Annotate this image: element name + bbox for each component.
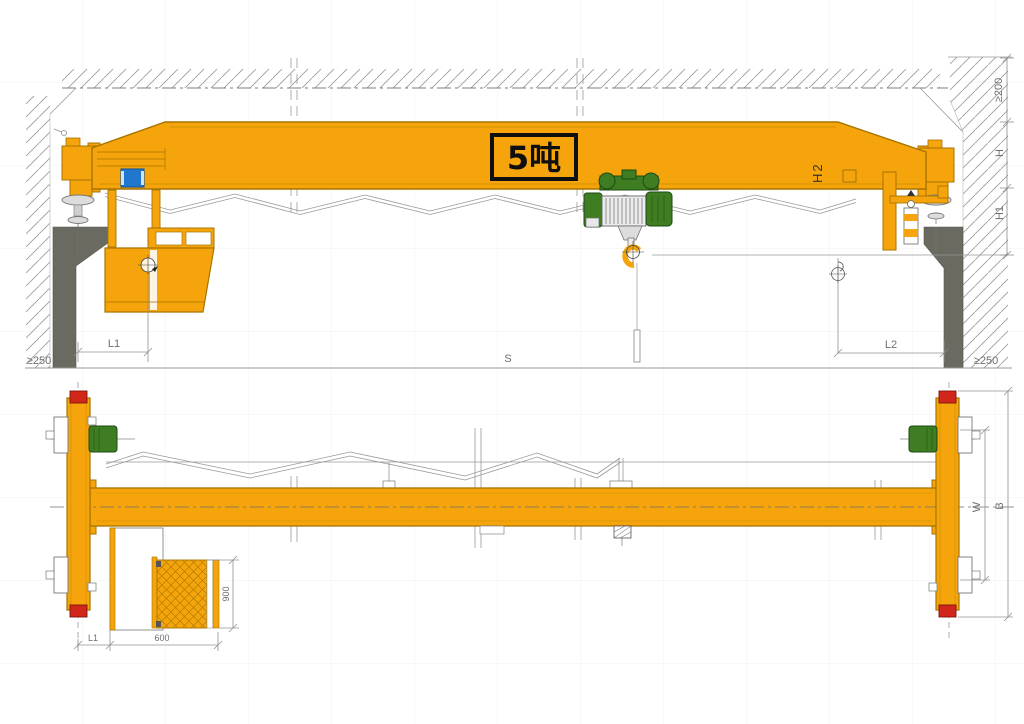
buffer-bottom-left <box>70 605 87 617</box>
buffer-bottom-right <box>939 605 956 617</box>
girder-bottom-tab <box>480 526 504 534</box>
dim-l1-front: L1 <box>108 338 120 350</box>
dim-carriage-length: B <box>994 502 1006 509</box>
dim-h: H <box>994 149 1006 157</box>
dim-l2-front: L2 <box>885 339 897 351</box>
travel-motor-right <box>909 426 937 452</box>
crane-engineering-drawing: 5吨 H2 <box>0 0 1024 724</box>
dim-clearance-right: ≥250 <box>974 355 998 367</box>
dim-cab-offset: L1 <box>88 633 98 643</box>
dim-wheelbase: W <box>971 501 983 512</box>
dim-clearance-left: ≥250 <box>27 355 51 367</box>
dim-cab-width: 600 <box>154 633 169 643</box>
capacity-label: 5吨 <box>507 139 561 177</box>
buffer-top-right <box>939 391 956 403</box>
dim-span: S <box>504 353 511 365</box>
dim-cab-depth: 900 <box>221 586 231 601</box>
girder-front: 5吨 H2 <box>54 122 954 196</box>
dim-h1: H1 <box>994 206 1006 220</box>
cable-drum-component <box>121 169 144 187</box>
hoist-trolley <box>599 170 659 190</box>
buffer-top-left <box>70 391 87 403</box>
girder-height-label: H2 <box>810 162 825 183</box>
dim-ceiling-clearance: ≥200 <box>993 78 1005 102</box>
hook-plumb <box>634 330 640 362</box>
travel-motor-left <box>89 426 117 452</box>
